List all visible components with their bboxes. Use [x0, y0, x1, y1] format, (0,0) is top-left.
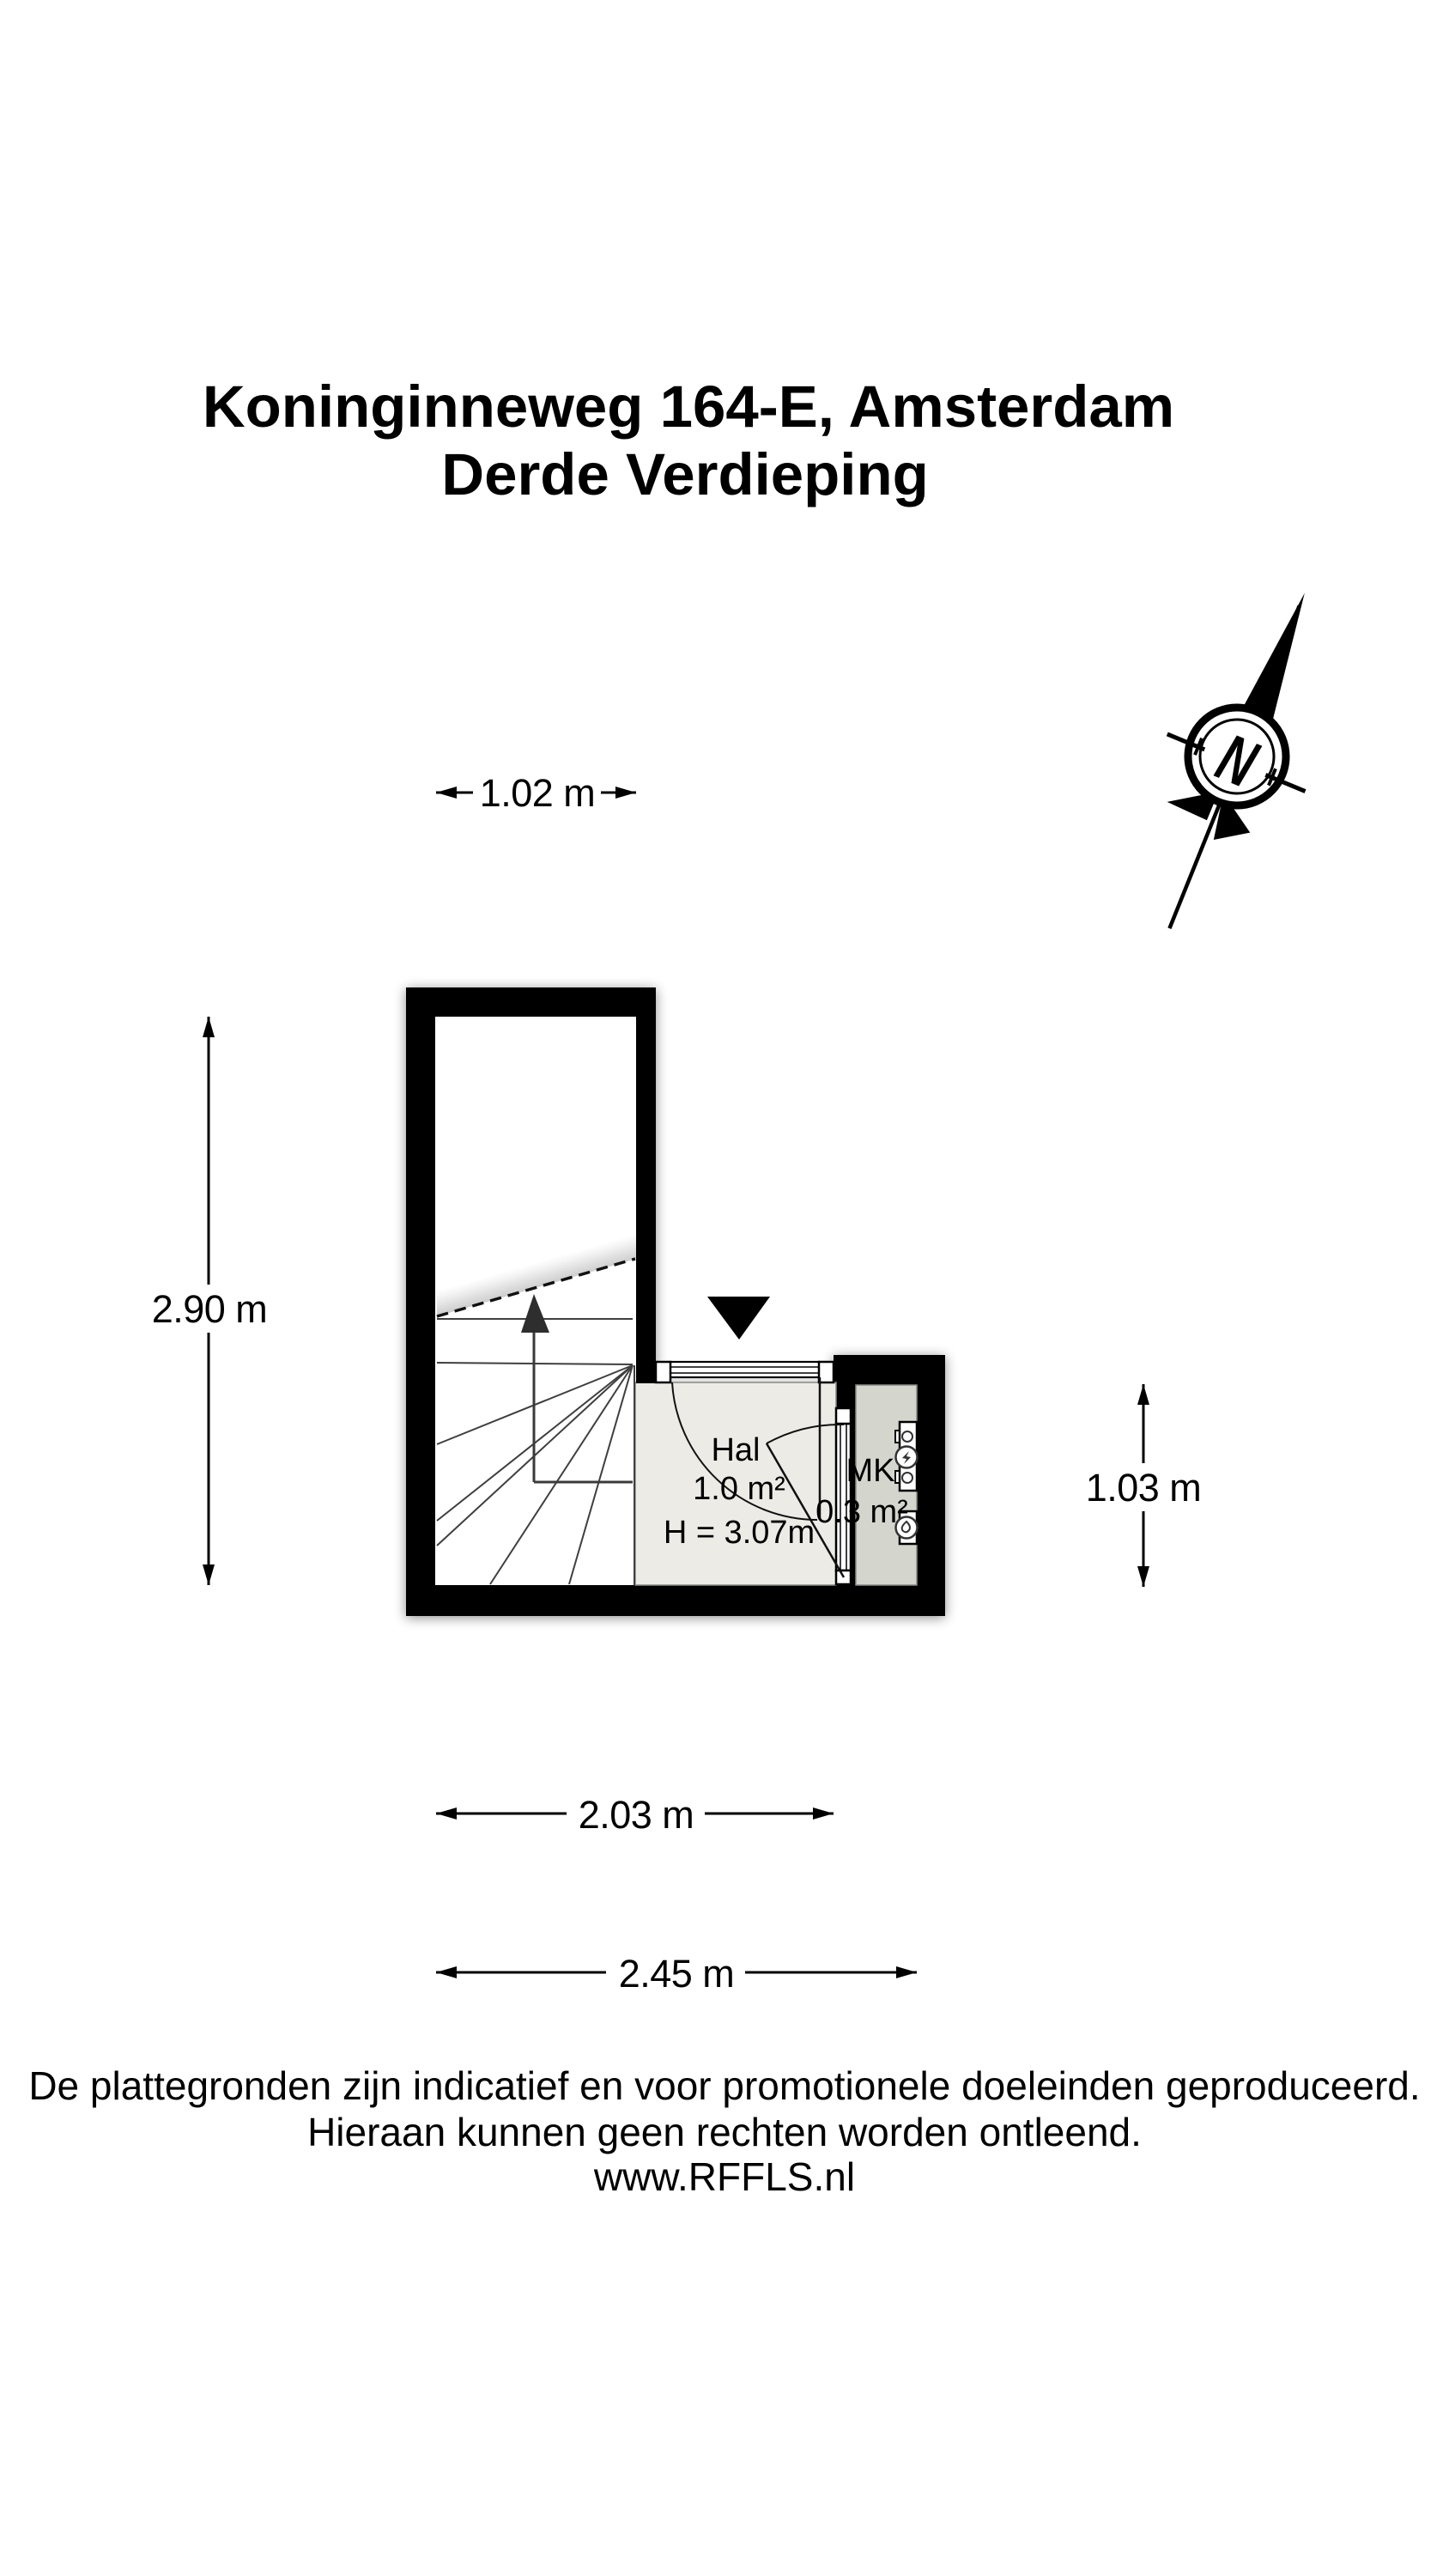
svg-text:Hieraan kunnen geen rechten wo: Hieraan kunnen geen rechten worden ontle…	[307, 2110, 1142, 2154]
svg-text:www.RFFLS.nl: www.RFFLS.nl	[593, 2154, 855, 2199]
svg-text:2.03 m: 2.03 m	[579, 1793, 694, 1837]
svg-text:1.0 m²: 1.0 m²	[693, 1471, 785, 1507]
svg-text:Hal: Hal	[711, 1432, 760, 1468]
svg-text:2.90 m: 2.90 m	[152, 1287, 268, 1331]
svg-text:0.3 m²: 0.3 m²	[815, 1494, 908, 1530]
svg-text:MK: MK	[846, 1453, 895, 1489]
svg-text:1.03 m: 1.03 m	[1086, 1466, 1202, 1510]
svg-text:H = 3.07m: H = 3.07m	[664, 1515, 815, 1551]
svg-text:2.45 m: 2.45 m	[619, 1952, 735, 1996]
svg-text:De plattegronden zijn indicati: De plattegronden zijn indicatief en voor…	[28, 2063, 1420, 2108]
svg-text:1.02 m: 1.02 m	[480, 771, 596, 815]
svg-text:Derde Verdieping: Derde Verdieping	[441, 441, 929, 507]
svg-text:Koninginneweg 164-E, Amsterdam: Koninginneweg 164-E, Amsterdam	[203, 374, 1174, 440]
